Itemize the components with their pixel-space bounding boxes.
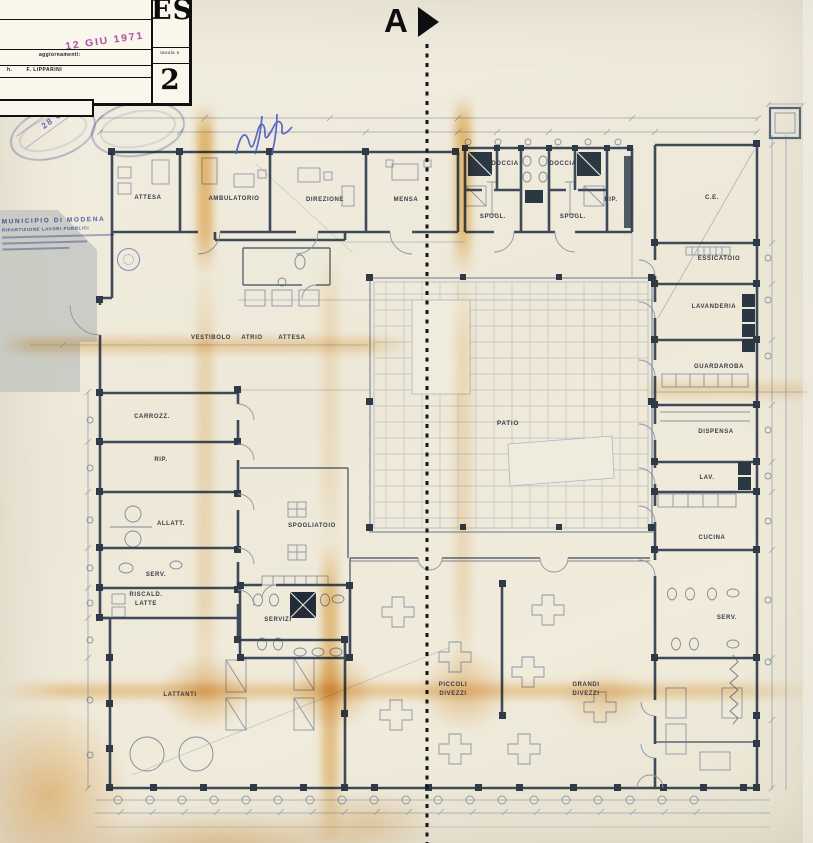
author-row: h.F. LIPPARINI: [7, 67, 62, 73]
section-marker-a: A: [384, 2, 454, 46]
room-label-cucina: CUCINA: [699, 534, 726, 543]
section-arrow-icon: [418, 7, 439, 37]
room-label-servizi: SERVIZI: [264, 616, 291, 625]
room-label-spogliatoio: SPOGLIATOIO: [288, 522, 336, 531]
room-label-rip-top: RIP.: [604, 196, 617, 205]
round-stamp-icon: [117, 248, 140, 271]
stamp-office-dept: RIPARTIZIONE LAVORI PUBBLICI: [2, 224, 124, 232]
patio-courtyard: [370, 278, 652, 532]
scan-edge: [803, 0, 813, 843]
municipality-stamp: MUNICIPIO DI MODENA RIPARTIZIONE LAVORI …: [2, 215, 125, 250]
door-swings: [70, 232, 663, 788]
signature-ink: [236, 114, 292, 154]
updates-label: aggiornamenti:: [39, 52, 81, 58]
column-detail-square: [770, 108, 800, 138]
title-block-rule: [151, 47, 189, 48]
walls-thick: [100, 140, 760, 788]
title-block-extension: [0, 99, 94, 117]
room-label-grandi-divezzi: GRANDI DIVEZZI: [572, 681, 599, 698]
room-label-guardaroba: GUARDAROBA: [694, 363, 744, 372]
room-label-carrozz: CARROZZ.: [134, 413, 170, 422]
room-label-direzione: DIREZIONE: [306, 196, 344, 205]
dimension-lines: [30, 102, 808, 827]
room-label-essicatoio: ESSICATOIO: [698, 255, 740, 264]
stamp-illegible-line: [2, 234, 114, 239]
room-label-lav: LAV.: [699, 474, 714, 483]
title-block-rule: [0, 77, 151, 78]
room-label-doccia-2: DOCCIA: [549, 160, 576, 169]
patio-opening-2: [508, 436, 614, 486]
walls-medium: [240, 248, 757, 742]
title-block-rule: [0, 19, 151, 20]
room-label-rip-left: RIP.: [154, 456, 167, 465]
blueprint-scan: ATTESA AMBULATORIO DIREZIONE MENSA DOCCI…: [0, 0, 813, 843]
author-name: F. LIPPARINI: [26, 67, 62, 73]
room-label-mensa: MENSA: [394, 196, 419, 205]
room-label-attesa-2: ATTESA: [278, 334, 305, 343]
stamp-illegible-line: [2, 240, 87, 244]
title-block: EDISON ES tavola n 2 aggiornamenti: 12 G…: [0, 0, 192, 106]
title-block-rule: [0, 65, 151, 66]
room-label-riscald-latte: RISCALD. LATTE: [129, 591, 162, 608]
room-label-spogl-1: SPOGL.: [480, 213, 506, 222]
room-label-spogl-2: SPOGL.: [560, 213, 586, 222]
room-label-piccoli-divezzi: PICCOLI DIVEZZI: [439, 681, 468, 698]
grid-bubbles: [87, 139, 771, 804]
room-label-serv-right: SERV.: [717, 614, 737, 623]
patio-opening-1: [412, 300, 470, 394]
room-label-attesa: ATTESA: [134, 194, 161, 203]
room-label-atrio: ATRIO: [241, 334, 262, 343]
section-letter: A: [384, 2, 408, 40]
room-label-patio: PATIO: [497, 419, 519, 428]
sheet-caption: tavola n: [151, 50, 189, 55]
sheet-number: 2: [151, 63, 189, 96]
room-label-lattanti: LATTANTI: [163, 691, 196, 700]
room-label-vestibolo: VESTIBOLO: [191, 334, 231, 343]
room-label-ambulatorio: AMBULATORIO: [208, 195, 259, 204]
author-prefix: h.: [7, 67, 12, 73]
room-label-allatt: ALLATT.: [157, 520, 185, 529]
dark-fixtures: [290, 152, 755, 618]
sheet-code: ES: [151, 0, 189, 26]
room-label-ce: C.E.: [705, 194, 719, 203]
room-label-serv-left: SERV.: [146, 571, 166, 580]
room-label-doccia-1: DOCCIA: [491, 160, 518, 169]
room-label-lavanderia: LAVANDERIA: [692, 303, 736, 312]
room-label-dispensa: DISPENSA: [698, 428, 733, 437]
